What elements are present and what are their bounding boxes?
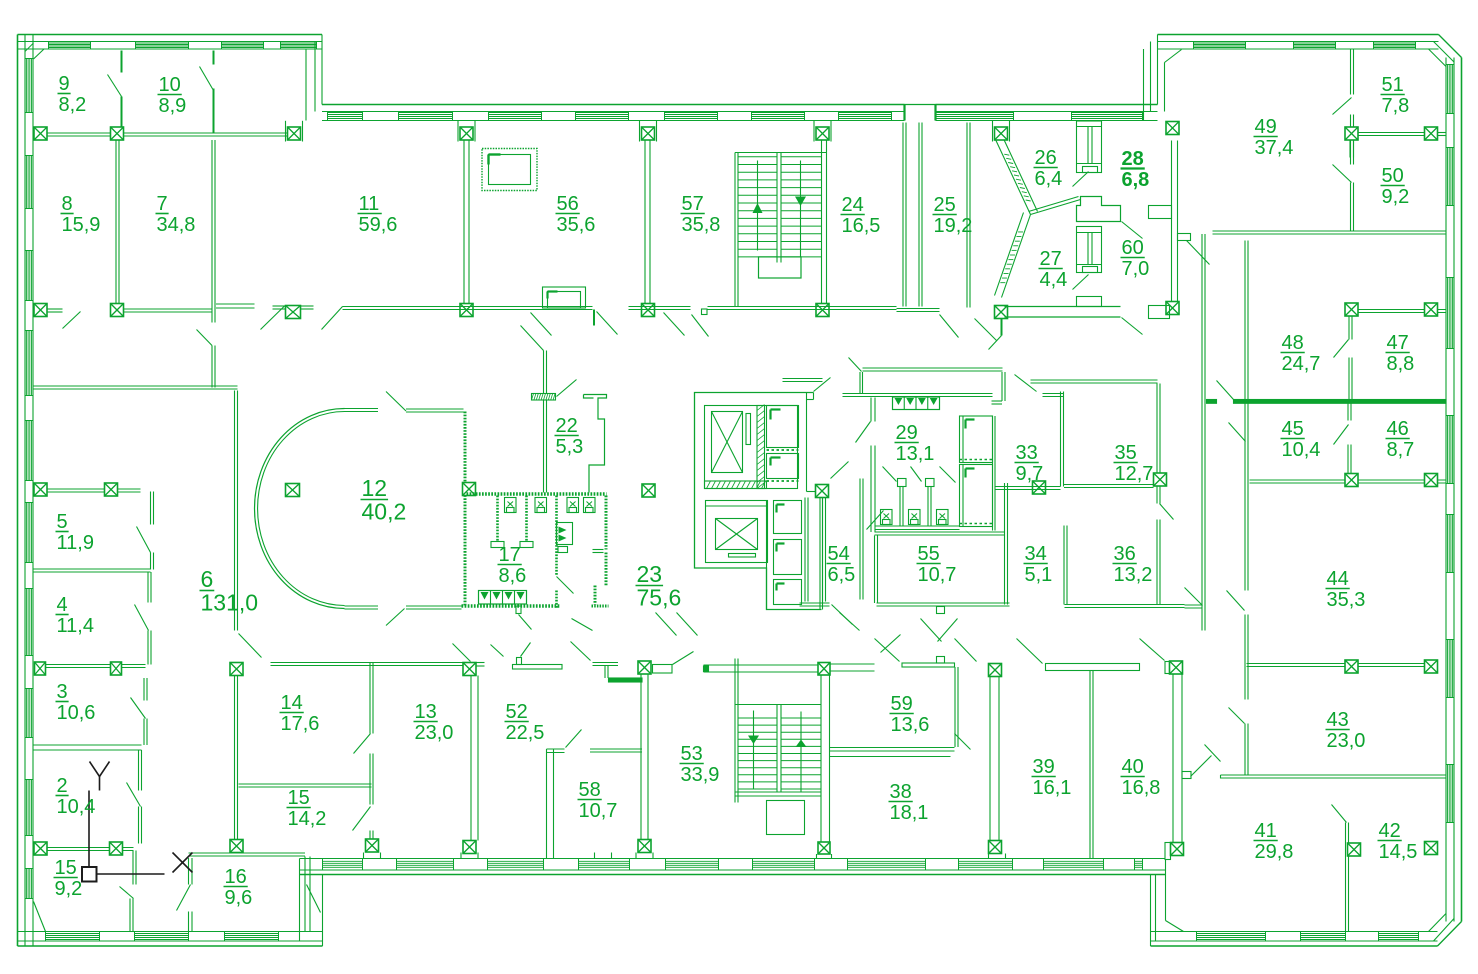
svg-text:49: 49	[1255, 116, 1277, 138]
svg-text:6,8: 6,8	[1122, 169, 1150, 191]
svg-text:8,9: 8,9	[159, 95, 187, 117]
svg-text:10,4: 10,4	[1282, 439, 1321, 461]
svg-text:23,0: 23,0	[415, 722, 454, 744]
svg-text:59,6: 59,6	[359, 214, 398, 236]
svg-text:9,6: 9,6	[225, 887, 253, 909]
svg-text:5: 5	[57, 511, 68, 533]
svg-text:3: 3	[57, 681, 68, 703]
svg-text:23,0: 23,0	[1327, 730, 1366, 752]
svg-text:16: 16	[225, 866, 247, 888]
svg-text:40: 40	[1122, 756, 1144, 778]
svg-text:57: 57	[682, 193, 704, 215]
svg-text:15: 15	[55, 857, 77, 879]
svg-text:7,8: 7,8	[1382, 95, 1410, 117]
svg-text:58: 58	[579, 779, 601, 801]
svg-text:13,1: 13,1	[896, 443, 935, 465]
svg-text:43: 43	[1327, 709, 1349, 731]
svg-text:131,0: 131,0	[201, 590, 259, 616]
svg-text:10,4: 10,4	[57, 796, 96, 818]
svg-text:35,6: 35,6	[557, 214, 596, 236]
svg-text:24: 24	[842, 194, 864, 216]
svg-text:29,8: 29,8	[1255, 841, 1294, 863]
svg-text:60: 60	[1122, 237, 1144, 259]
svg-text:45: 45	[1282, 418, 1304, 440]
svg-text:12,7: 12,7	[1115, 463, 1154, 485]
svg-text:9,2: 9,2	[55, 878, 83, 900]
svg-text:28: 28	[1122, 148, 1144, 170]
svg-text:40,2: 40,2	[362, 499, 407, 525]
svg-text:46: 46	[1387, 418, 1409, 440]
svg-text:7: 7	[157, 193, 168, 215]
svg-text:24,7: 24,7	[1282, 353, 1321, 375]
svg-text:13,2: 13,2	[1114, 564, 1153, 586]
svg-text:37,4: 37,4	[1255, 137, 1294, 159]
svg-text:17: 17	[499, 544, 521, 566]
svg-text:15,9: 15,9	[62, 214, 101, 236]
svg-text:16,5: 16,5	[842, 215, 881, 237]
svg-text:50: 50	[1382, 165, 1404, 187]
svg-text:26: 26	[1035, 147, 1057, 169]
svg-text:8,7: 8,7	[1387, 439, 1415, 461]
svg-text:16,1: 16,1	[1033, 777, 1072, 799]
svg-text:39: 39	[1033, 756, 1055, 778]
svg-text:25: 25	[934, 194, 956, 216]
svg-text:13: 13	[415, 701, 437, 723]
svg-text:14,5: 14,5	[1379, 841, 1418, 863]
svg-text:48: 48	[1282, 332, 1304, 354]
svg-text:10,6: 10,6	[57, 702, 96, 724]
svg-text:8,6: 8,6	[499, 565, 527, 587]
svg-text:11,9: 11,9	[57, 532, 94, 554]
svg-text:14,2: 14,2	[288, 808, 327, 830]
svg-text:22,5: 22,5	[506, 722, 545, 744]
svg-text:14: 14	[281, 692, 303, 714]
svg-text:2: 2	[57, 775, 68, 797]
svg-text:6,5: 6,5	[828, 564, 856, 586]
svg-text:16,8: 16,8	[1122, 777, 1161, 799]
svg-text:34: 34	[1025, 543, 1047, 565]
svg-text:33,9: 33,9	[681, 764, 720, 786]
svg-text:47: 47	[1387, 332, 1409, 354]
svg-text:41: 41	[1255, 820, 1277, 842]
svg-text:35,8: 35,8	[682, 214, 721, 236]
svg-text:59: 59	[891, 693, 913, 715]
svg-text:19,2: 19,2	[934, 215, 973, 237]
svg-text:53: 53	[681, 743, 703, 765]
svg-text:29: 29	[896, 422, 918, 444]
svg-text:4,4: 4,4	[1040, 269, 1068, 291]
svg-text:23: 23	[637, 561, 663, 587]
svg-text:11: 11	[359, 193, 380, 215]
svg-text:6: 6	[201, 566, 214, 592]
svg-text:9,7: 9,7	[1016, 463, 1044, 485]
svg-text:12: 12	[362, 475, 388, 501]
svg-text:54: 54	[828, 543, 850, 565]
svg-text:10,7: 10,7	[918, 564, 957, 586]
svg-text:27: 27	[1040, 248, 1062, 270]
svg-text:38: 38	[890, 781, 912, 803]
svg-text:15: 15	[288, 787, 310, 809]
svg-text:8,2: 8,2	[59, 94, 87, 116]
svg-text:18,1: 18,1	[890, 802, 929, 824]
svg-text:35,3: 35,3	[1327, 589, 1366, 611]
svg-text:4: 4	[57, 594, 68, 616]
svg-text:33: 33	[1016, 442, 1038, 464]
svg-text:9: 9	[59, 73, 70, 95]
svg-text:35: 35	[1115, 442, 1137, 464]
svg-text:42: 42	[1379, 820, 1401, 842]
svg-text:11,4: 11,4	[57, 615, 94, 637]
svg-text:44: 44	[1327, 568, 1349, 590]
svg-text:36: 36	[1114, 543, 1136, 565]
svg-text:13,6: 13,6	[891, 714, 930, 736]
svg-text:8,8: 8,8	[1387, 353, 1415, 375]
svg-text:55: 55	[918, 543, 940, 565]
svg-text:52: 52	[506, 701, 528, 723]
svg-text:34,8: 34,8	[157, 214, 196, 236]
svg-text:10,7: 10,7	[579, 800, 618, 822]
svg-text:5,1: 5,1	[1025, 564, 1053, 586]
svg-text:56: 56	[557, 193, 579, 215]
svg-text:6,4: 6,4	[1035, 168, 1063, 190]
svg-text:17,6: 17,6	[281, 713, 320, 735]
svg-text:5,3: 5,3	[556, 436, 584, 458]
svg-text:8: 8	[62, 193, 73, 215]
svg-text:51: 51	[1382, 74, 1404, 96]
svg-text:10: 10	[159, 74, 181, 96]
svg-text:9,2: 9,2	[1382, 186, 1410, 208]
svg-text:22: 22	[556, 415, 578, 437]
svg-text:75,6: 75,6	[637, 585, 682, 611]
svg-text:7,0: 7,0	[1122, 258, 1150, 280]
